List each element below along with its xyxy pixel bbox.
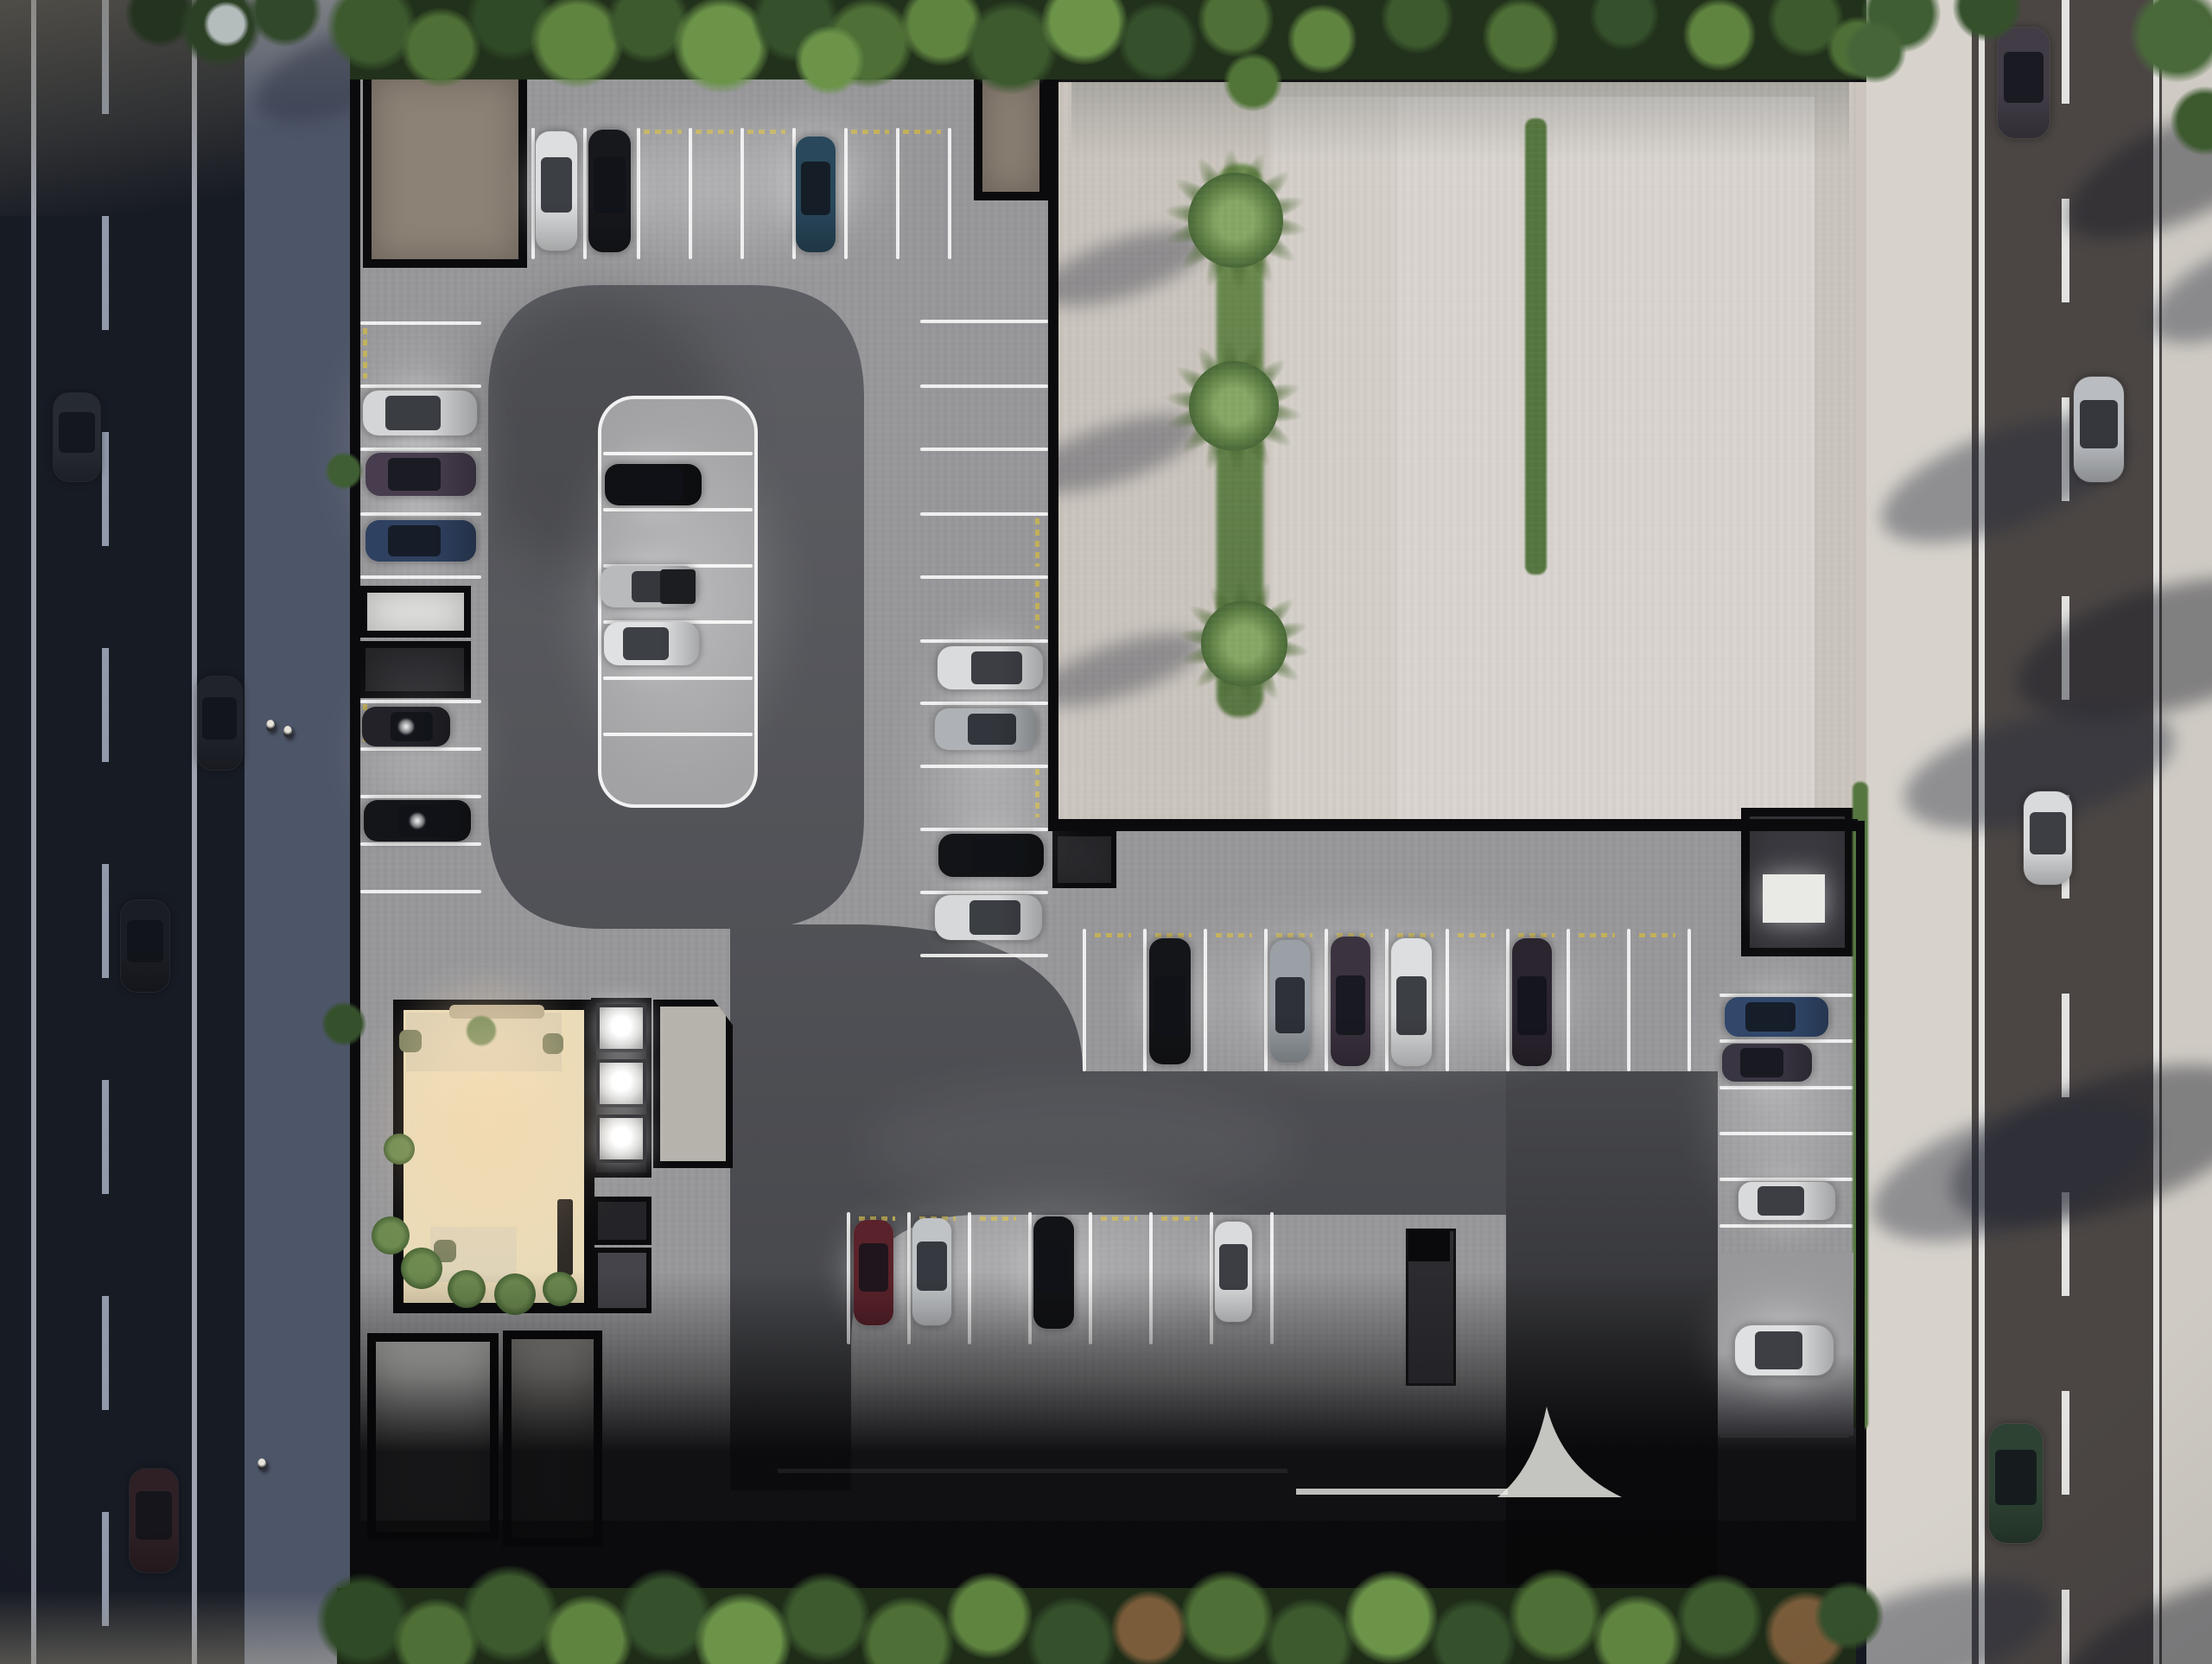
car-suv-black (1033, 1216, 1074, 1329)
tree-canopy (1683, 0, 1756, 71)
car-glass (1745, 1002, 1796, 1032)
car-glass (2030, 812, 2067, 855)
car-glass (971, 651, 1022, 684)
car-sedan-white (536, 131, 577, 251)
car-sedan-dark (197, 676, 242, 770)
car-suv-black (1149, 938, 1191, 1064)
car-glass (1039, 1242, 1070, 1293)
tree-canopy (204, 2, 249, 47)
car-glass (859, 1243, 889, 1292)
car-glass (1275, 977, 1306, 1033)
car-sedan-white (1391, 938, 1432, 1066)
car-sedan-blue (365, 520, 476, 562)
tree-canopy (1509, 1569, 1602, 1662)
car-glass (972, 839, 1023, 872)
car-sedan-blue (796, 137, 836, 252)
tree-canopy (325, 452, 363, 490)
car-suv-plum (1998, 28, 2050, 138)
site-plan-scene (0, 0, 2212, 1664)
car-sedan-silver (2074, 377, 2124, 482)
pedestrian (257, 1458, 266, 1470)
car-sedan-plum (1512, 938, 1552, 1066)
car-glass (1219, 1244, 1248, 1290)
car-glass (202, 697, 237, 740)
tree-canopy (1224, 53, 1282, 111)
car-sedan-gray (1270, 940, 1310, 1063)
pickup-bed (660, 569, 695, 604)
car-glass (388, 525, 441, 556)
pedestrian (266, 720, 275, 732)
car-glass (541, 157, 572, 212)
car-glass (623, 627, 669, 660)
car-pickup-dark (362, 707, 450, 746)
car-glass (968, 714, 1017, 745)
car-sedan-white (938, 646, 1043, 689)
car-glass (2004, 52, 2044, 103)
car-glass (1758, 1186, 1804, 1215)
tree-canopy (321, 1001, 366, 1046)
car-sedan-white (1738, 1182, 1835, 1220)
car-glass (636, 469, 683, 500)
tree-canopy (946, 1572, 1033, 1659)
tree-canopy (1844, 21, 1906, 83)
car-sedan-white (2024, 791, 2072, 885)
car-glass (2080, 400, 2118, 448)
car-sedan-blue (1725, 997, 1828, 1037)
car-glass (1995, 1450, 2036, 1504)
garage-wall (1048, 67, 1058, 831)
car-suv-white (363, 391, 477, 435)
garage-wall (350, 67, 360, 1594)
tree-canopy (1815, 1581, 1884, 1650)
garage-wall (1856, 821, 1865, 1588)
car-sedan-silver (935, 708, 1037, 750)
car-sedan-black (364, 800, 471, 842)
tree-canopy (1111, 1591, 1187, 1664)
gore-marking (1497, 1407, 1622, 1497)
tree-canopy (1344, 1571, 1438, 1664)
car-sedan-black (938, 834, 1044, 877)
car-glass (1517, 976, 1548, 1035)
car-suv-black (588, 130, 631, 252)
car-glass (59, 412, 94, 453)
tree-canopy (1483, 0, 1559, 74)
car-glass (1396, 976, 1427, 1035)
garage-wall (1048, 819, 1858, 831)
car-suv-green (1989, 1424, 2043, 1543)
car-sedan-red (854, 1220, 893, 1325)
car-glass (136, 1491, 173, 1539)
tree-canopy (1180, 1571, 1274, 1664)
car-suv-black (605, 464, 702, 505)
pedestrian (283, 726, 292, 738)
car-glass (801, 162, 831, 215)
car-hatch-white (1735, 1325, 1834, 1375)
car-sedan-plum (1722, 1044, 1812, 1082)
exit-stop-line (1296, 1489, 1508, 1495)
car-sedan-plum (365, 453, 476, 496)
car-pickup-silver (601, 566, 697, 607)
car-sedan-purple (1331, 937, 1370, 1066)
car-roof-light (410, 813, 425, 829)
tree-canopy (780, 1572, 870, 1662)
car-sedan-white (604, 622, 699, 665)
car-roof-light (398, 719, 414, 734)
exit-gore-marking (0, 0, 2212, 1664)
car-sedan-white (1215, 1222, 1252, 1322)
car-sedan-white (935, 895, 1042, 940)
car-glass (385, 396, 440, 430)
tree-canopy (1676, 1574, 1763, 1661)
tree-canopy (795, 26, 864, 95)
car-glass (1336, 975, 1366, 1035)
car-sedan-maroon (130, 1469, 178, 1572)
car-glass (388, 458, 441, 491)
car-glass (1755, 1331, 1802, 1369)
car-glass (969, 900, 1021, 935)
car-glass (1154, 976, 1185, 1034)
car-sedan-silver (912, 1218, 951, 1325)
tree-canopy (1118, 2, 1198, 81)
car-sedan-dark (54, 393, 100, 481)
car-glass (594, 156, 626, 213)
car-sedan-black (121, 900, 169, 992)
car-glass (917, 1242, 946, 1291)
car-glass (1740, 1048, 1783, 1077)
car-glass (127, 920, 164, 962)
tree-canopy (1287, 4, 1357, 73)
